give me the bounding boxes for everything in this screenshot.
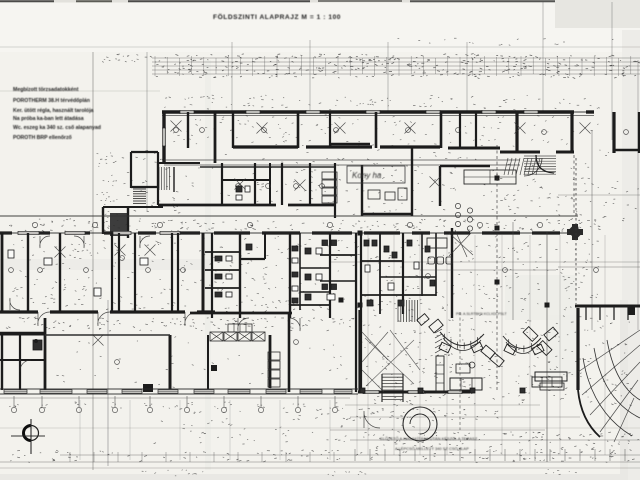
svg-text:ELŐTETŐ A KIALAKÍTÁSA UTÁN KÉS: ELŐTETŐ A KIALAKÍTÁSA UTÁN KÉSZÜL A TERA… bbox=[380, 436, 478, 441]
svg-text:Ker. ütött régla, használt tar: Ker. ütött régla, használt tarolója bbox=[13, 108, 94, 114]
svg-text:POROTH BRP ellenőrző: POROTH BRP ellenőrző bbox=[13, 135, 72, 141]
svg-text:Megbízott törzsadatokként: Megbízott törzsadatokként bbox=[13, 87, 79, 93]
svg-text:Pld. A.SLRTBKN KCLXDLPSLT: Pld. A.SLRTBKN KCLXDLPSLT bbox=[456, 312, 507, 316]
svg-text:Na próba ka-ban lett átadása: Na próba ka-ban lett átadása bbox=[13, 116, 84, 122]
svg-text:Wc. eszeg ka 340 sz. cső alap: Wc. eszeg ka 340 sz. cső alapanyad bbox=[13, 125, 101, 131]
svg-text:A LÉPCSŐ MELLETT 340 SZ CSÖ AL: A LÉPCSŐ MELLETT 340 SZ CSÖ ALAP bbox=[395, 446, 469, 451]
svg-text:FÖLDSZINTI ALAPRAJZ M = 1 : 1: FÖLDSZINTI ALAPRAJZ M = 1 : 100 bbox=[213, 12, 341, 21]
svg-text:POROTHERM 38.H térvédőplán: POROTHERM 38.H térvédőplán bbox=[13, 98, 90, 104]
svg-text:Kony ha: Kony ha bbox=[352, 171, 382, 180]
